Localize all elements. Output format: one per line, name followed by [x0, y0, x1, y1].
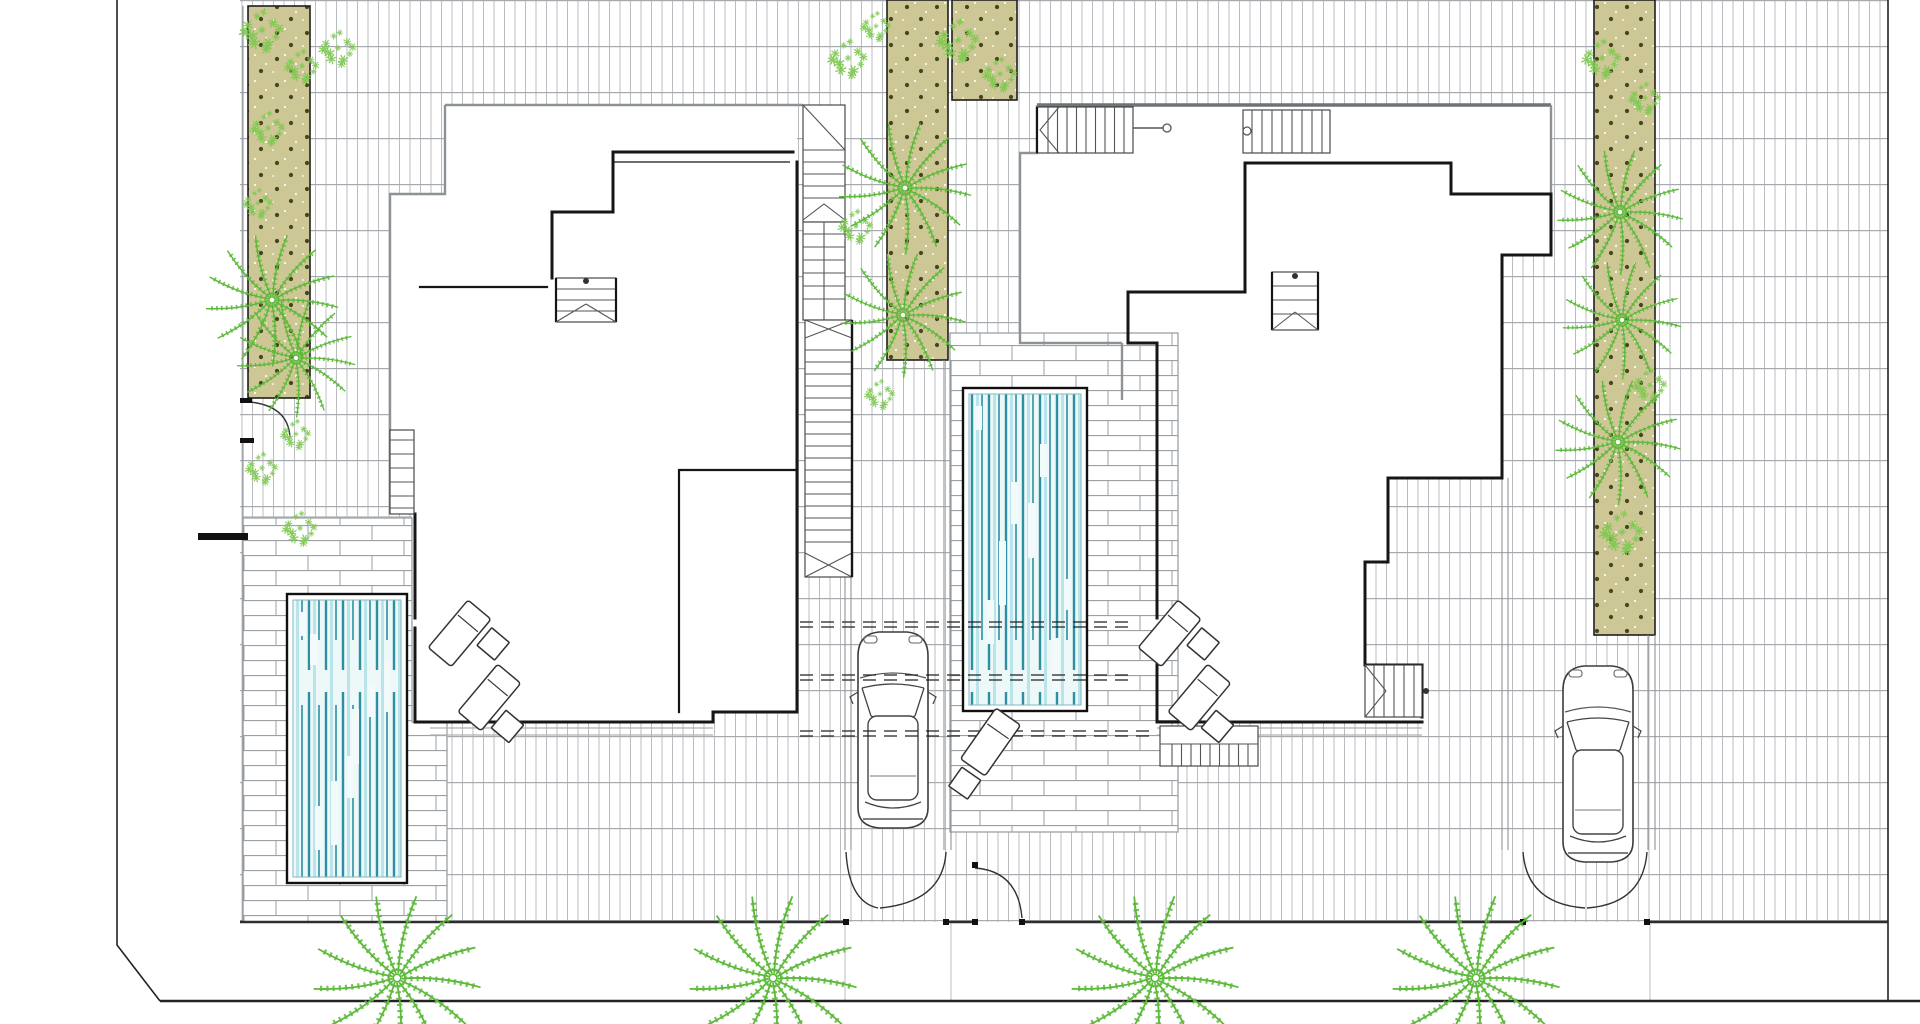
site-plan-stage: Twin villas site plan — pools, decks, dr… — [0, 0, 1920, 1024]
pool-2 — [963, 388, 1087, 711]
pool-1 — [287, 594, 407, 883]
villa-1-side-stair-icon — [390, 430, 414, 514]
villa-1-internal-stair-icon — [556, 278, 616, 322]
car-2-icon — [1555, 666, 1641, 862]
villa-1-external-stair-icon — [803, 105, 852, 577]
site-plan-canvas: Twin villas site plan — pools, decks, dr… — [0, 0, 1920, 1024]
villa-2-internal-stair-icon — [1272, 272, 1318, 330]
car-1-icon — [850, 632, 936, 828]
side-path-villa-1 — [407, 518, 447, 722]
villa-2-lower-stair-icon — [1365, 665, 1429, 717]
